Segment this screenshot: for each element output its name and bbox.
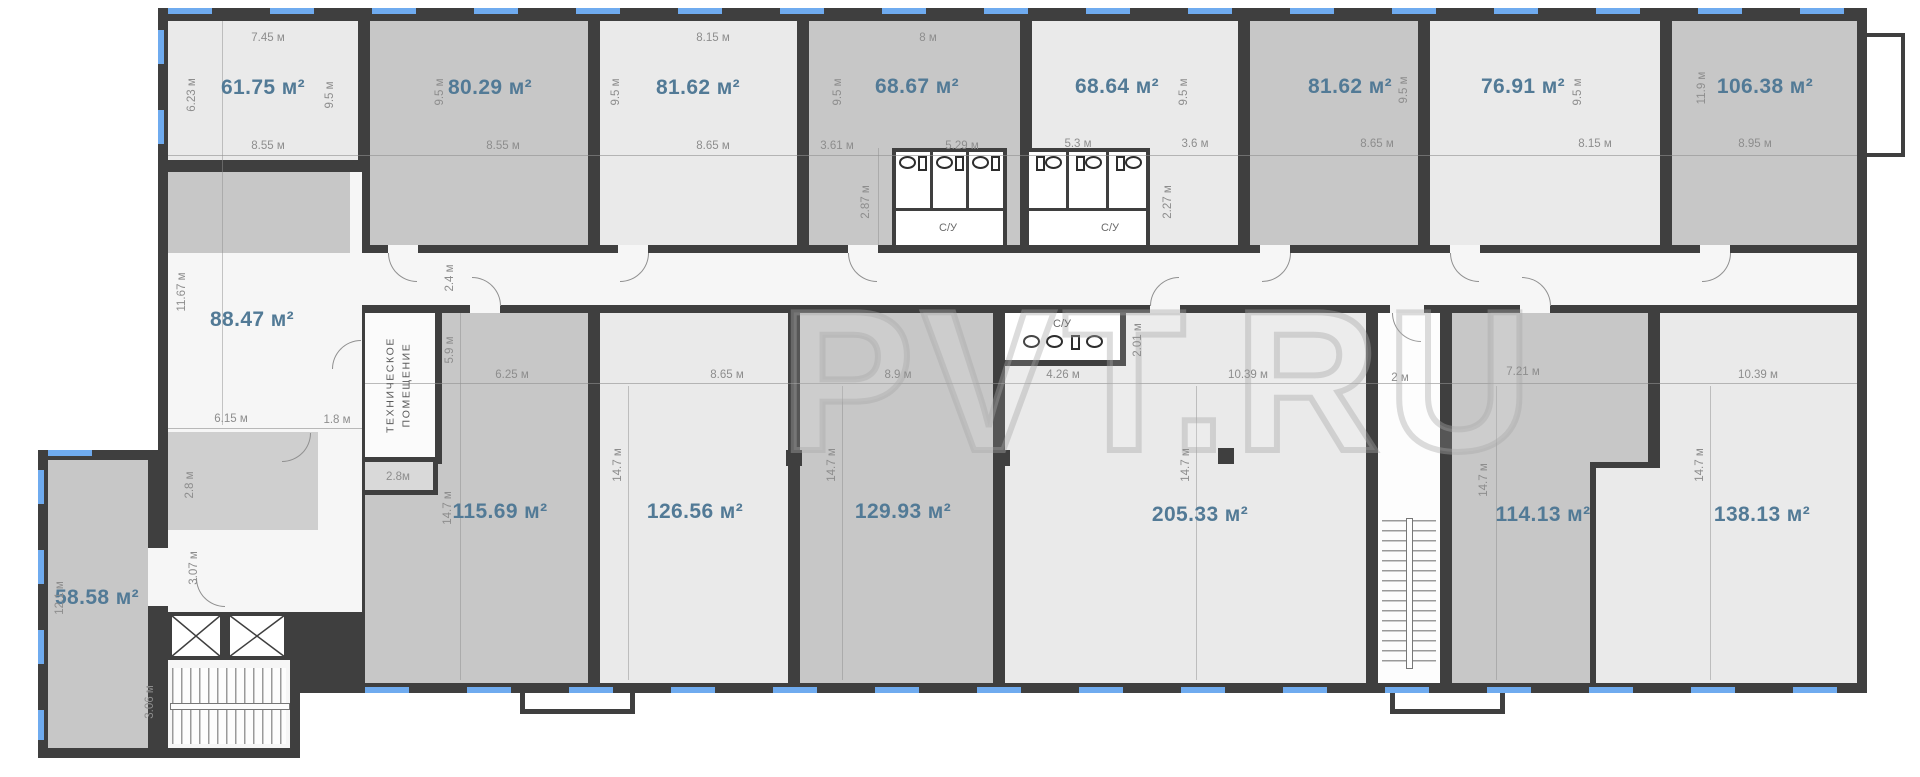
vestibule-right [1390,693,1505,714]
sink-icon [918,156,927,171]
dimension-label: 3.6 м [1181,138,1208,150]
door-gap [388,245,418,253]
watermark: PVT.RU [780,267,1539,497]
dimension-label: 4.26 м [1046,369,1079,381]
wc-label: С/У [939,222,957,234]
room-area-label: 58.58 м² [55,586,139,610]
tech-room-label-line1: ТЕХНИЧЕСКОЕ [384,337,396,433]
elevator-icon [228,614,286,663]
dim-line [878,148,879,245]
dimension-label: 8.65 м [696,140,729,152]
room-area-label: 61.75 м² [221,76,305,100]
window-strip [38,470,44,740]
room-area-label: 205.33 м² [1152,503,1248,527]
dimension-label: 6.15 м [214,413,247,425]
room-fill-76-91 [1430,21,1660,245]
room-area-label: 68.64 м² [1075,75,1159,99]
dim-line [168,428,362,429]
dim-line [168,155,1857,156]
sink-icon [1036,156,1045,171]
dimension-label: 14.7 м [612,448,624,481]
wall [1590,468,1596,683]
dimension-label: 2.8 м [184,471,196,498]
dimension-label: 11.67 м [176,272,188,311]
room-area-label: 106.38 м² [1717,75,1813,99]
dimension-label: 3.06 м [144,685,156,718]
dimension-label: 8.55 м [486,140,519,152]
wc-stall [1109,152,1146,208]
wc-label: С/У [1053,318,1071,330]
tech-room-label-line2: ПОМЕЩЕНИЕ [400,343,412,428]
dimension-label: 14.7 м [442,491,454,524]
sink-icon [991,156,1000,171]
wc-stall [1069,152,1109,208]
dimension-label: 2.8м [386,471,410,483]
room-area-label: 76.91 м² [1481,75,1565,99]
dimension-label: 2.27 м [1162,185,1174,218]
dimension-label: 10.39 м [1228,369,1268,381]
tech-room-label: ТЕХНИЧЕСКОЕ ПОМЕЩЕНИЕ [383,337,415,433]
dimension-label: 14.7 м [826,448,838,481]
dimension-label: 2 м [1391,372,1409,384]
room-fill-81-62-b [1250,21,1418,245]
dimension-label: 14.7 м [1180,448,1192,481]
dimension-label: 14.7 м [1478,463,1490,496]
dimension-label: 8.95 м [1738,138,1771,150]
room-fill-106-38 [1672,21,1857,245]
dimension-label: 14.7 м [1694,448,1706,481]
toilet-icon [1085,156,1102,169]
dimension-label: 3.07 м [188,551,200,584]
dimension-label: 8 м [919,32,937,44]
dimension-label: 9.5 м [1178,78,1190,105]
dimension-label: 6.25 м [495,369,528,381]
wc-stall [1029,152,1069,208]
stair-divider [1406,518,1413,669]
room-area-label: 138.13 м² [1714,503,1810,527]
annex-opening [148,548,172,606]
room-area-label: 88.47 м² [210,308,294,332]
toilet-icon [936,156,953,169]
sink-icon [955,156,964,171]
dimension-label: 8.9 м [884,369,911,381]
window-strip [365,687,1857,693]
dimension-label: 9.5 м [1398,76,1410,103]
room-area-label: 68.67 м² [875,75,959,99]
dim-line [460,313,461,680]
sink-icon [1076,156,1085,171]
dimension-label: 9.5 м [324,81,336,108]
wc-stalls [896,152,1003,211]
dimension-label: 5.3 м [1064,138,1091,150]
door-gap [1260,245,1290,253]
dimension-label: 8.15 м [1578,138,1611,150]
dimension-label: 3.61 м [820,140,853,152]
dimension-label: 2.01 м [1132,323,1144,356]
dimension-label: 10.39 м [1738,369,1778,381]
window-strip [48,450,148,456]
door-gap [848,245,878,253]
room-area-label: 114.13 м² [1495,503,1590,527]
toilet-icon [972,156,989,169]
dimension-label: 2.87 м [860,185,872,218]
dimension-label: 9.5 м [1572,78,1584,105]
dimension-label: 7.21 м [1506,366,1539,378]
dimension-label: 1.8 м [323,414,350,426]
room-area-label: 129.93 м² [855,500,951,524]
room-fill-81-62-a [600,21,797,245]
door-gap [618,245,648,253]
wc-stalls [1029,152,1146,211]
balcony [1867,33,1905,157]
vestibule-left [520,693,635,714]
door-gap [1700,245,1730,253]
dimension-label: 8.55 м [251,140,284,152]
dim-line [1710,386,1711,680]
wc-stall [933,152,970,208]
stair-divider [170,703,290,710]
wc-room-right [1025,148,1150,245]
wall [1590,462,1660,468]
dimension-label: 5.29 м [945,140,978,152]
elevator-icon [170,614,222,663]
room-area-label: 80.29 м² [448,76,532,100]
dim-line [628,386,629,680]
dimension-label: 8.15 м [696,32,729,44]
room-fill-80-29 [370,21,588,245]
dimension-label: 8.65 м [1360,138,1393,150]
dimension-label: 5.9 м [444,336,456,363]
dimension-label: 7.45 м [251,32,284,44]
dimension-label: 9.5 м [434,78,446,105]
room-area-label: 81.62 м² [656,76,740,100]
room-area-label: 81.62 м² [1308,75,1392,99]
window-strip [168,8,1857,14]
floor-plan: PVT.RU 61.75 м² 80.29 м² 81.62 м² 68.67 … [0,0,1920,777]
dimension-label: 9.5 м [832,78,844,105]
dimension-label: 11.9 м [1696,72,1708,105]
dimension-label: 2.4 м [444,264,456,291]
window-strip [158,30,164,150]
wc-stall [969,152,1003,208]
room-area-label: 126.56 м² [647,500,743,524]
toilet-icon [1045,156,1062,169]
dimension-label: 8.65 м [710,369,743,381]
dimension-label: 6.23 м [186,78,198,111]
dimension-label: 9.5 м [610,78,622,105]
dimension-label: 12.1 м [54,581,66,614]
wc-label: С/У [1101,222,1119,234]
room-area-label: 115.69 м² [452,500,547,524]
sink-icon [1116,156,1125,171]
room-fill-138-13-notch [1596,468,1660,683]
toilet-icon [899,156,916,169]
wc-stall [896,152,933,208]
toilet-icon [1125,156,1142,169]
door-gap [470,305,500,313]
door-gap [1450,245,1480,253]
